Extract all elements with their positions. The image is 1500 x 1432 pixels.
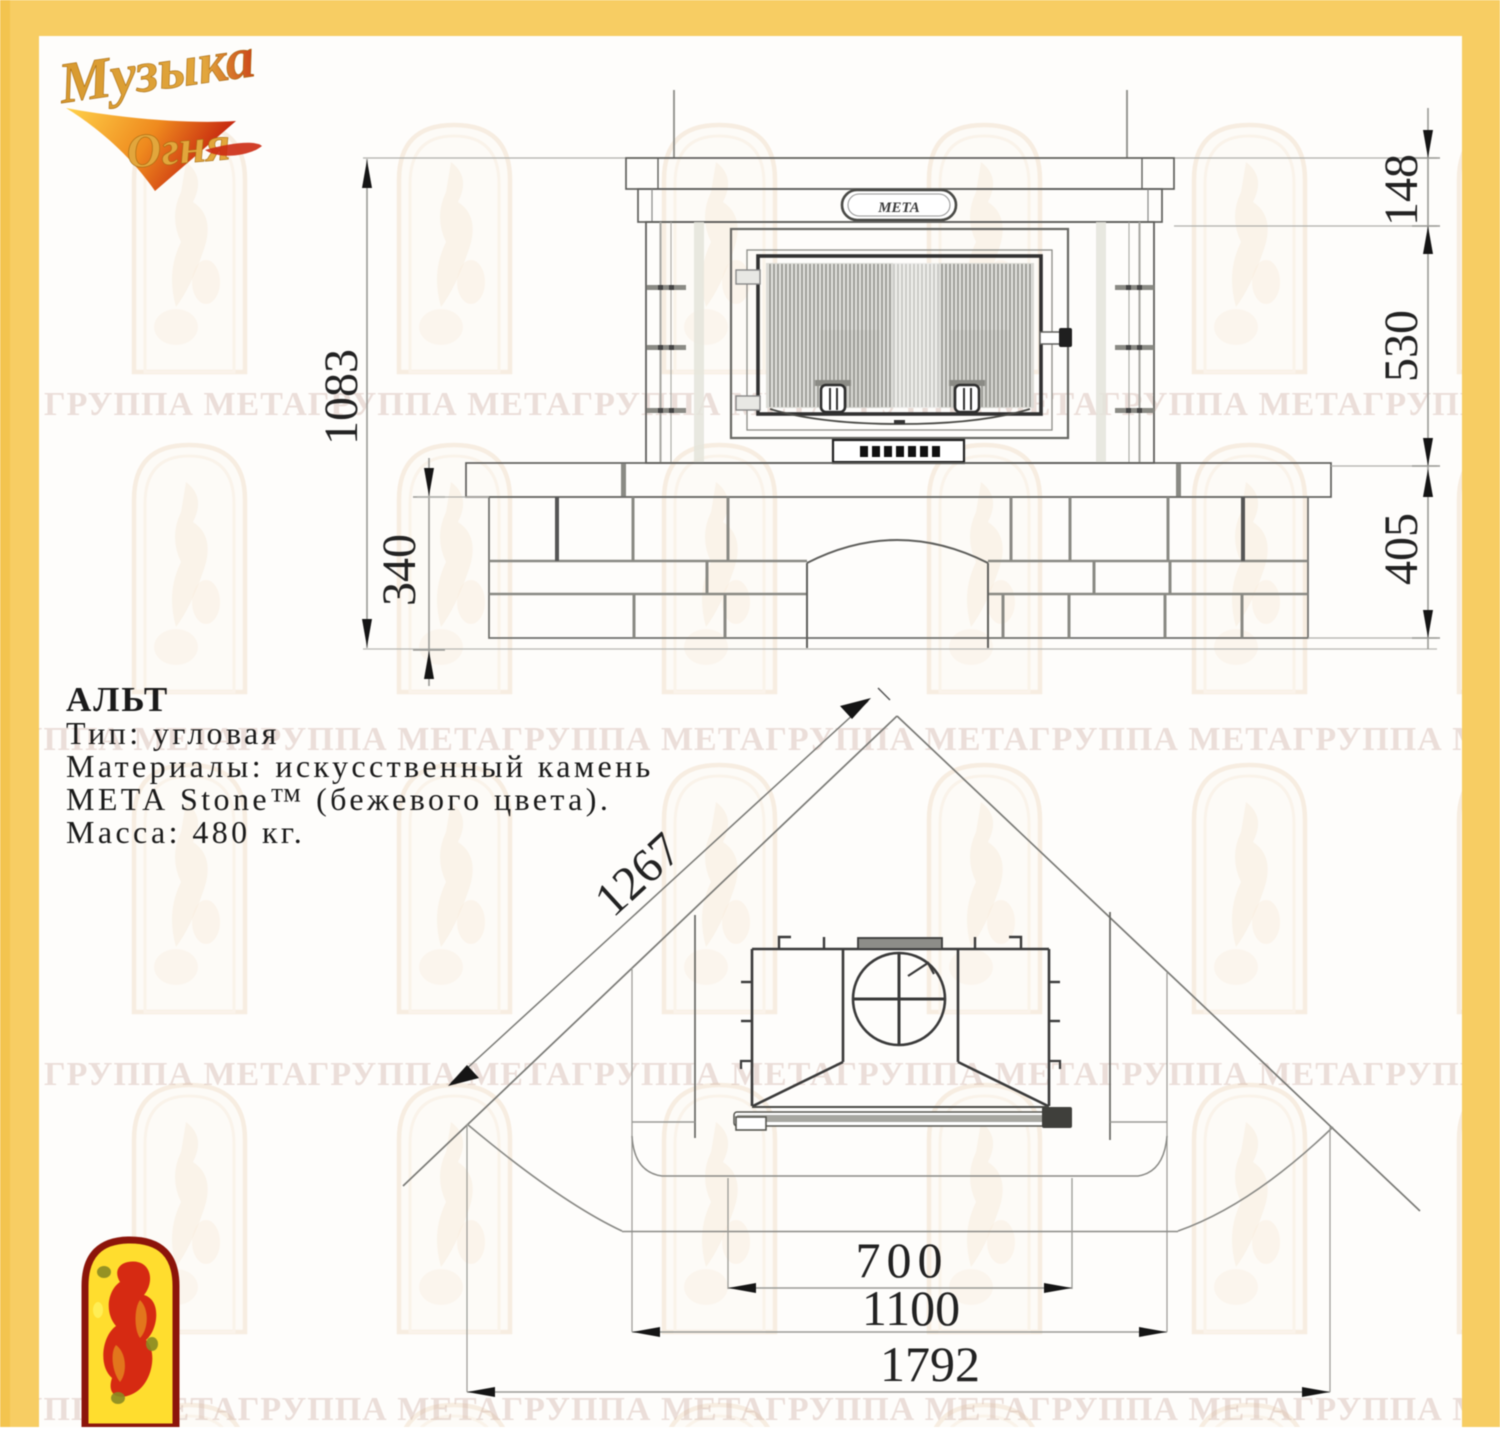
svg-text:Материалы: искусственный камен: Материалы: искусственный камень — [66, 748, 654, 784]
svg-text:1100: 1100 — [862, 1280, 960, 1336]
svg-text:1792: 1792 — [880, 1336, 980, 1392]
svg-text:ГРУППА МЕТАГРУППА МЕТАГРУППА М: ГРУППА МЕТАГРУППА МЕТАГРУППА МЕТАГРУППА … — [44, 1056, 1500, 1093]
svg-text:АЛЬТ: АЛЬТ — [66, 680, 169, 719]
svg-text:МЕТА Stone™ (бежевого цвета).: МЕТА Stone™ (бежевого цвета). — [66, 781, 611, 817]
svg-text:Масса: 480 кг.: Масса: 480 кг. — [66, 814, 305, 850]
svg-text:ГРУППА МЕТАГРУППА МЕТАГРУППА М: ГРУППА МЕТАГРУППА МЕТАГРУППА МЕТАГРУППА … — [0, 1391, 1500, 1427]
svg-text:Тип: угловая: Тип: угловая — [66, 715, 280, 751]
svg-text:148: 148 — [1375, 154, 1428, 226]
svg-text:340: 340 — [373, 534, 426, 606]
svg-text:405: 405 — [1375, 513, 1428, 585]
svg-text:МЕТА: МЕТА — [877, 200, 920, 216]
svg-text:530: 530 — [1375, 310, 1428, 382]
svg-text:1083: 1083 — [315, 349, 368, 445]
